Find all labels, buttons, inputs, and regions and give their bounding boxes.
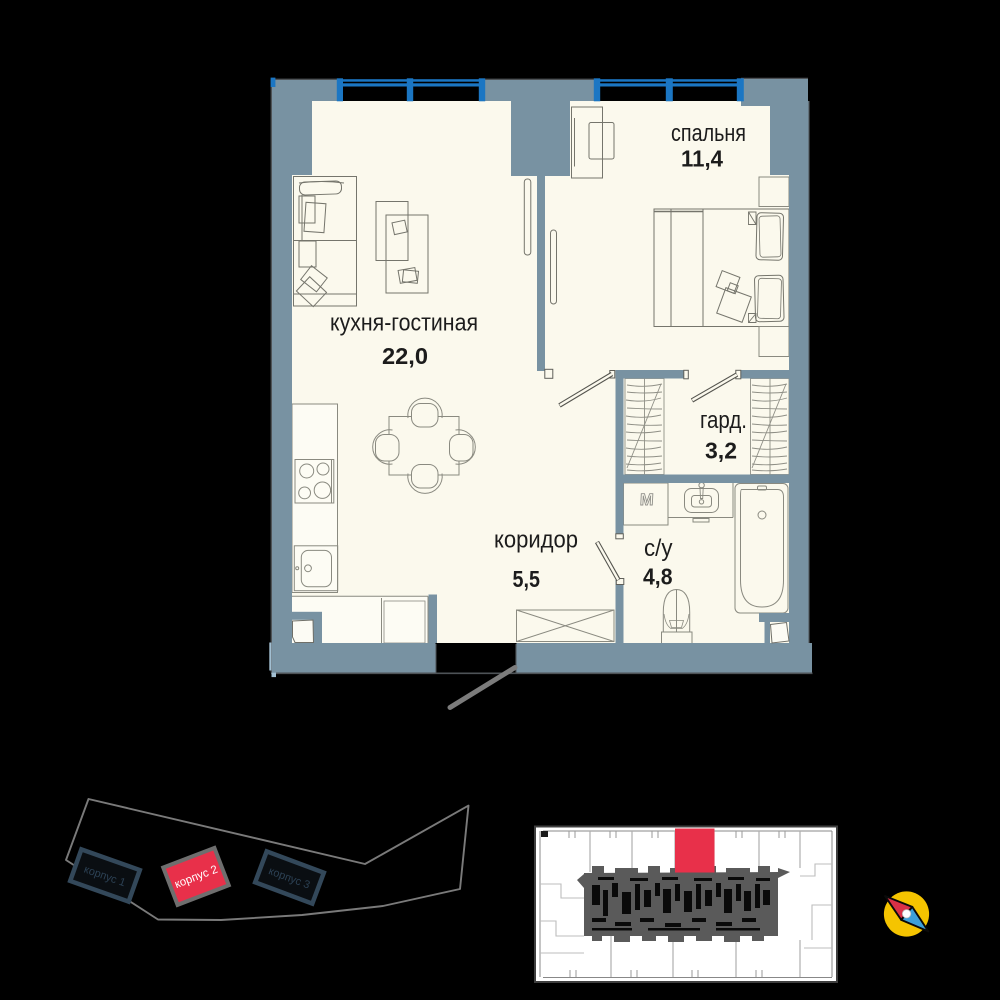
svg-text:гард.: гард. <box>700 407 747 434</box>
svg-text:М: М <box>639 491 654 509</box>
svg-text:3,2: 3,2 <box>705 438 737 464</box>
svg-text:4,8: 4,8 <box>643 564 673 590</box>
svg-text:11,4: 11,4 <box>681 146 723 172</box>
svg-text:спальня: спальня <box>671 120 746 147</box>
svg-text:5,5: 5,5 <box>513 566 541 592</box>
svg-text:коридор: коридор <box>494 527 578 554</box>
svg-text:22,0: 22,0 <box>382 343 428 369</box>
svg-text:с/у: с/у <box>644 535 673 562</box>
svg-text:кухня-гостиная: кухня-гостиная <box>330 310 478 337</box>
